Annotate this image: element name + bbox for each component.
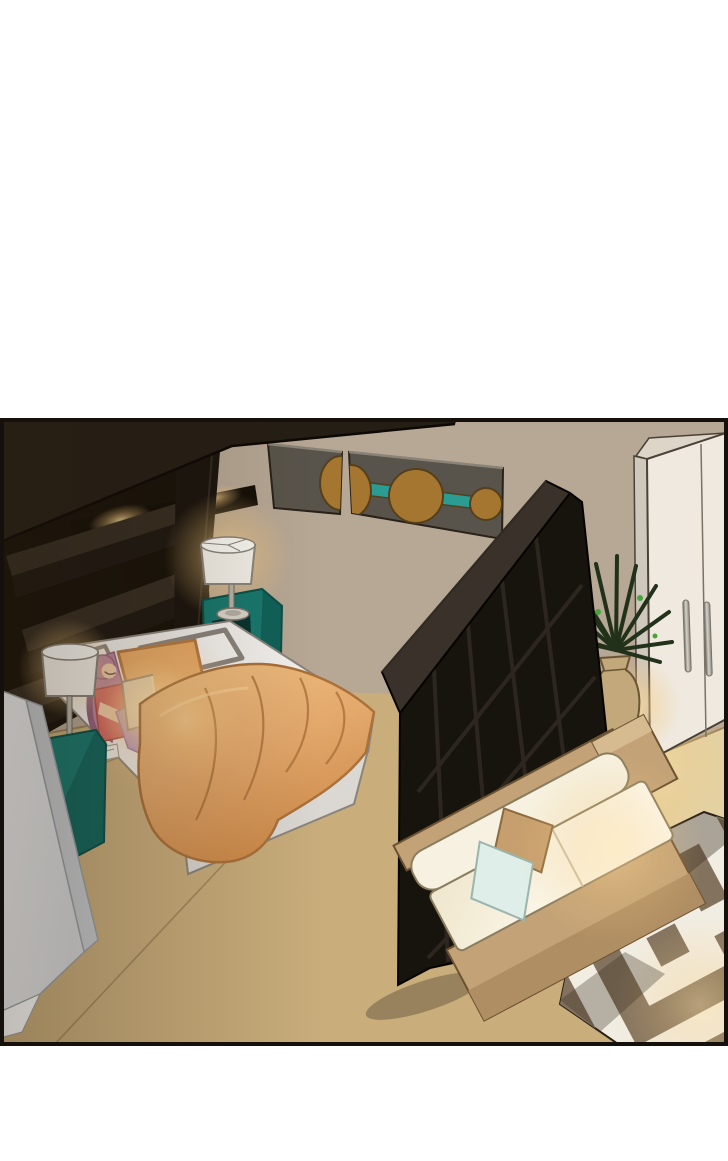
wall-art-big-circle	[389, 469, 443, 523]
left-vignette	[2, 420, 322, 1044]
comic-page	[0, 0, 728, 1161]
wall-art-small-circle	[470, 488, 502, 520]
comic-panel-illustration	[0, 0, 728, 1161]
sofa-seat-glow	[517, 753, 707, 943]
